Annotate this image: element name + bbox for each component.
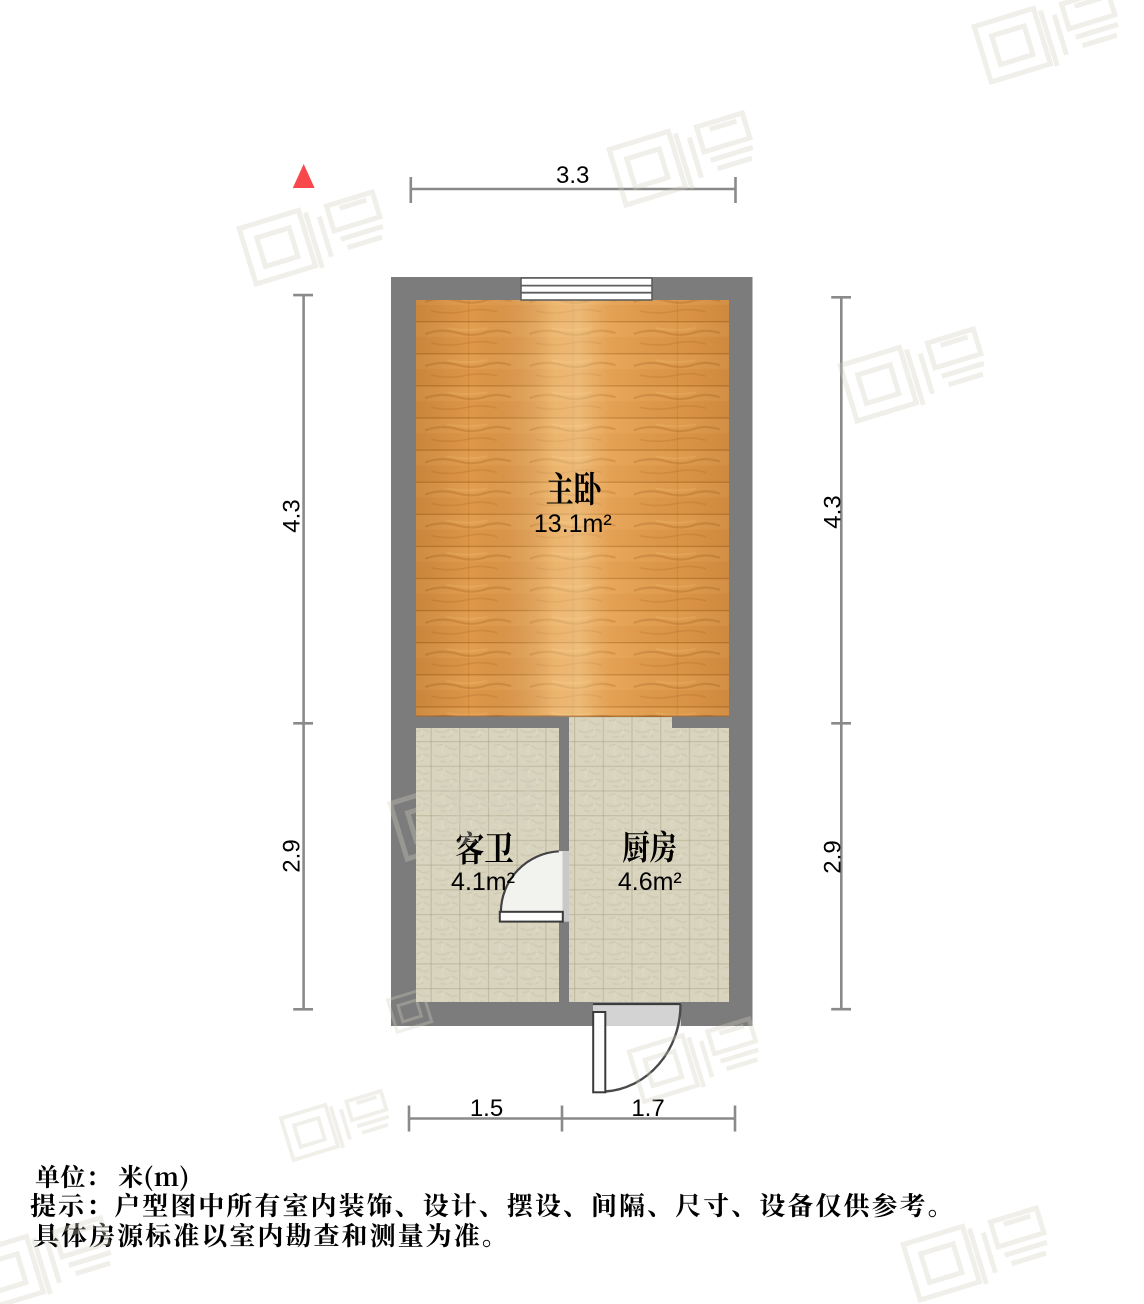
svg-text:4.1m²: 4.1m² [451,868,515,896]
svg-text:4.3: 4.3 [820,495,847,528]
svg-text:2.9: 2.9 [820,840,847,873]
svg-text:2.9: 2.9 [279,839,306,872]
svg-text:4.3: 4.3 [279,499,306,532]
svg-text:4.6m²: 4.6m² [618,868,682,896]
svg-text:1.5: 1.5 [470,1095,503,1122]
svg-text:3.3: 3.3 [556,162,589,189]
svg-text:13.1m²: 13.1m² [534,510,612,538]
